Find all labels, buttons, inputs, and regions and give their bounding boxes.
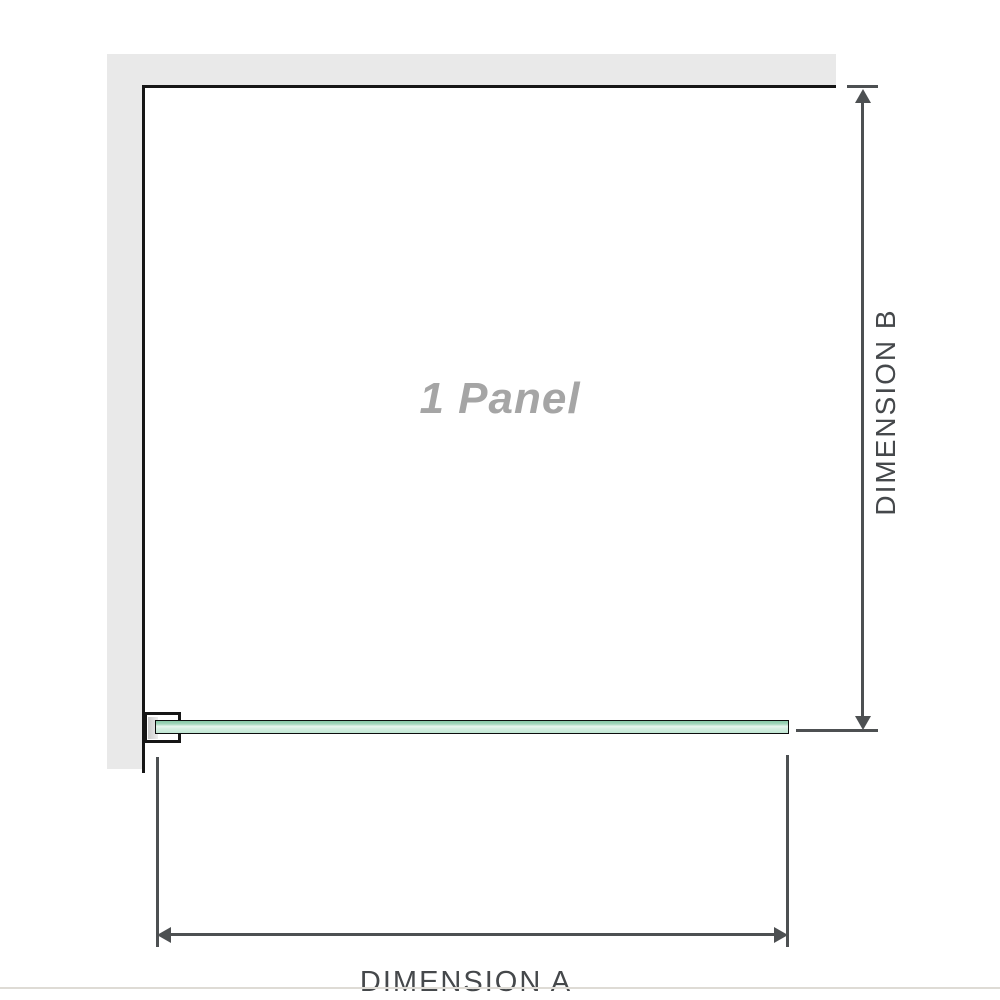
glass-panel: [155, 720, 789, 734]
panel-outline-top: [143, 85, 836, 88]
extension-line-right: [786, 755, 789, 947]
dimension-b-tick-top: [847, 85, 878, 88]
extension-line-left: [156, 757, 159, 947]
panel-count-label: 1 Panel: [419, 374, 580, 424]
dimension-a-label: DIMENSION A: [360, 966, 572, 999]
shower-panel-dimension-diagram: 1 Panel DIMENSION B DIMENSION A: [0, 0, 1000, 1000]
dimension-b-label: DIMENSION B: [870, 308, 902, 515]
arrow-right-icon: [774, 927, 788, 943]
arrow-left-icon: [157, 927, 171, 943]
dimension-a-line: [168, 933, 776, 936]
wall-vertical: [107, 54, 143, 769]
dimension-b-line: [861, 96, 864, 722]
page-baseline: [0, 987, 1000, 989]
arrow-up-icon: [855, 89, 871, 103]
panel-outline-left: [142, 85, 145, 773]
wall-horizontal: [107, 54, 836, 86]
arrow-down-icon: [855, 716, 871, 730]
